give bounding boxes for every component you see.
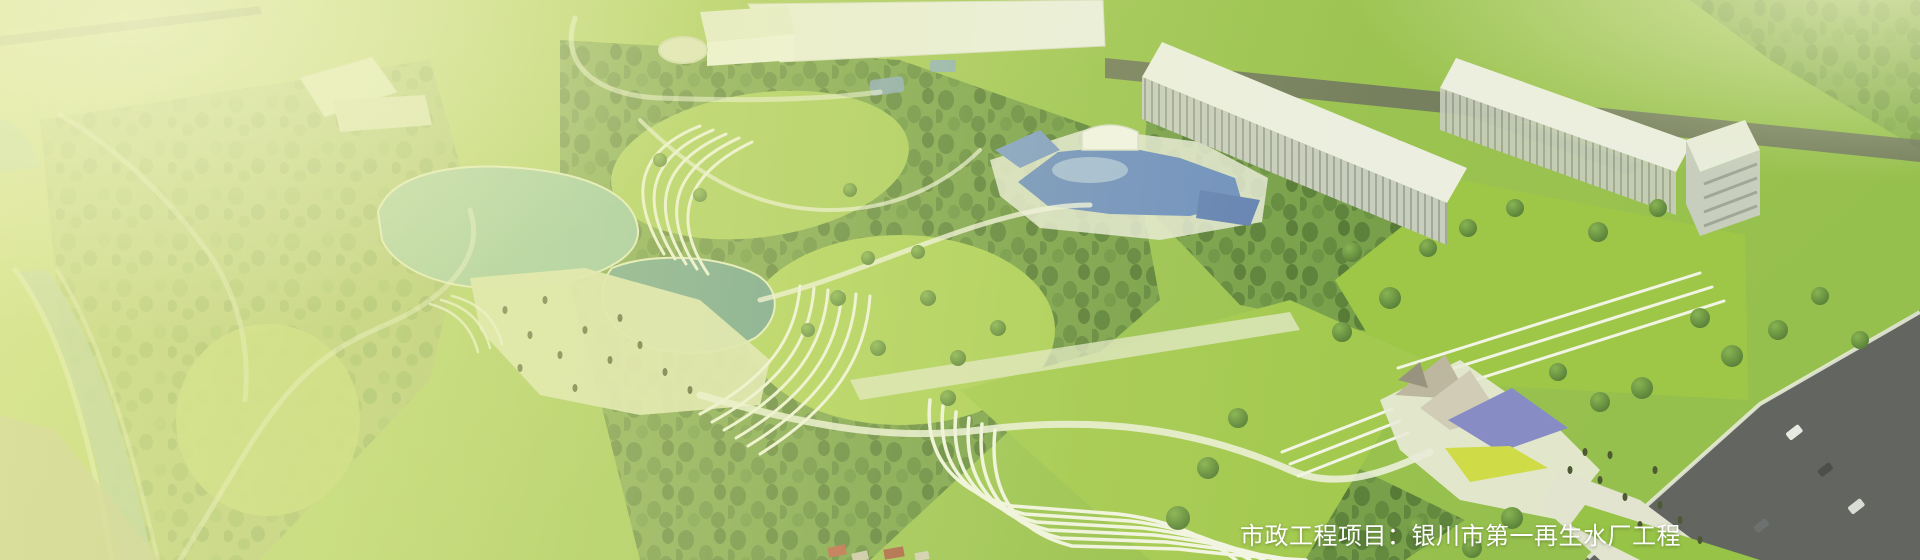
aerial-rendering	[0, 0, 1920, 560]
round-tank	[659, 37, 707, 63]
main-lake	[378, 167, 638, 289]
pool-highlight	[1052, 157, 1128, 183]
hero-banner: 市政工程项目：银川市第一再生水厂工程	[0, 0, 1920, 560]
glass-structure-small	[930, 60, 956, 72]
pool-pavilion	[1082, 125, 1138, 150]
project-caption: 市政工程项目：银川市第一再生水厂工程	[1240, 516, 1681, 551]
